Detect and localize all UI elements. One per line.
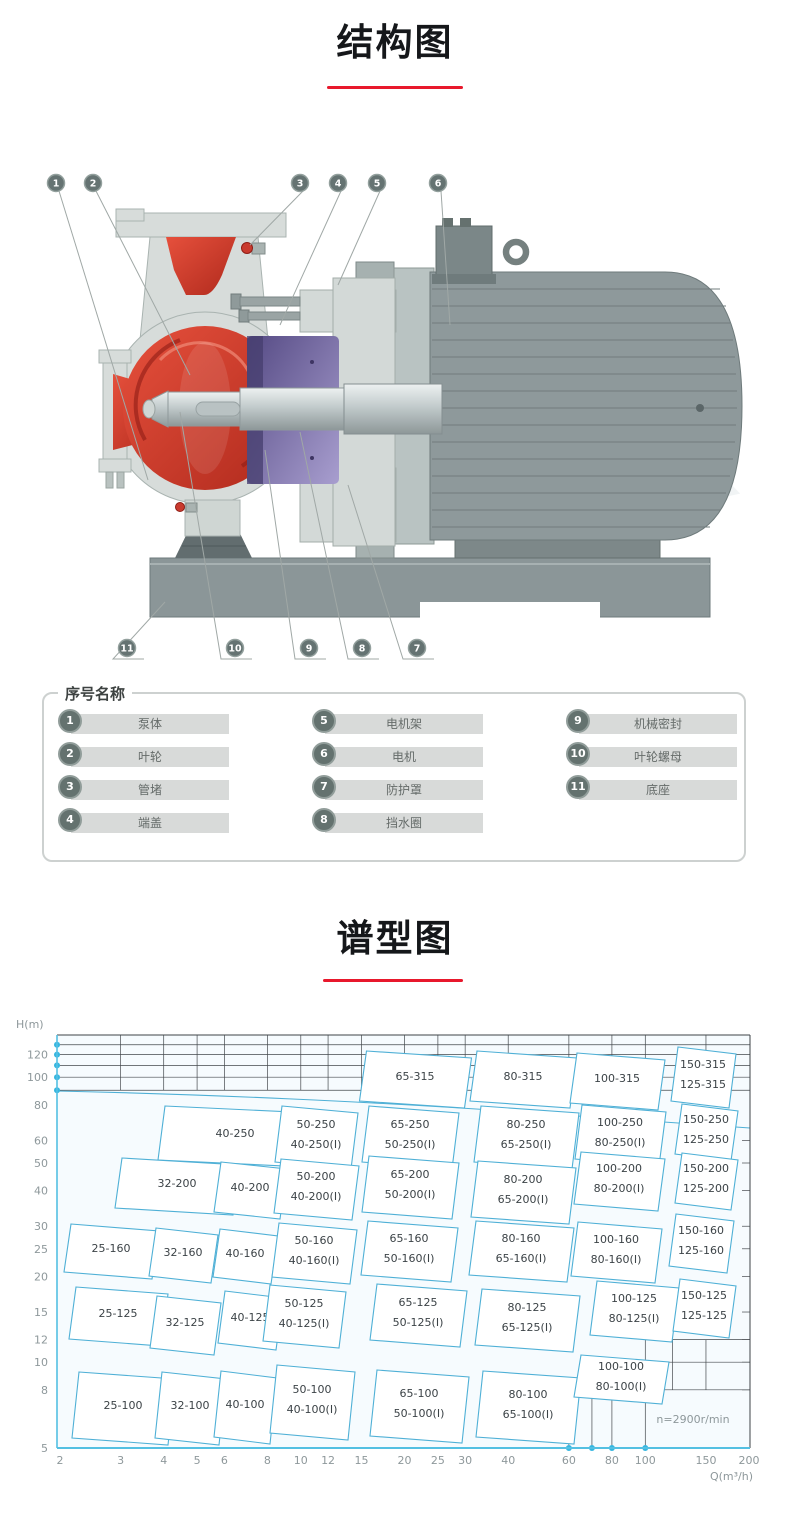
- cell-model-label: 100-200: [596, 1162, 642, 1175]
- cell-model-label: 65-200: [391, 1168, 430, 1181]
- cell-model-label: 125-125: [681, 1309, 727, 1322]
- part-list-item: 防护罩7: [312, 774, 548, 807]
- y-tick-label: 12: [34, 1334, 48, 1347]
- cell-model-label: 80-315: [504, 1070, 543, 1083]
- y-tick-label: 5: [41, 1442, 48, 1455]
- cell-model-label: 50-200: [297, 1170, 336, 1183]
- parts-column-2: 电机架5电机6防护罩7挡水圈8: [312, 708, 548, 840]
- cell-model-label: 25-160: [92, 1242, 131, 1255]
- part-label: 机械密封: [579, 714, 737, 734]
- x-tick-label: 3: [117, 1454, 124, 1467]
- cell-model-label: 125-315: [680, 1078, 726, 1091]
- cell-model-label: 25-125: [99, 1307, 138, 1320]
- cell-model-label: 125-200: [683, 1182, 729, 1195]
- part-label: 叶轮螺母: [579, 747, 737, 767]
- cell-model-label: 80-200: [504, 1173, 543, 1186]
- cell-model-label: 65-125: [399, 1296, 438, 1309]
- cell-model-label: 100-125: [611, 1292, 657, 1305]
- cell-model-label: 40-200: [231, 1181, 270, 1194]
- parts-column-3: 机械密封9叶轮螺母10底座11: [566, 708, 790, 807]
- cell-model-label: 50-125(I): [393, 1316, 444, 1329]
- callout-number: 7: [414, 644, 421, 655]
- part-number-badge: 6: [312, 742, 336, 766]
- cell-model-label: 50-100(I): [394, 1407, 445, 1420]
- cell-model-label: 125-160: [678, 1244, 724, 1257]
- x-tick-label: 80: [605, 1454, 619, 1467]
- part-list-item: 底座11: [566, 774, 790, 807]
- pump-shaft: [143, 384, 442, 434]
- x-tick-label: 2: [57, 1454, 64, 1467]
- part-label: 底座: [579, 780, 737, 800]
- cell-model-label: 80-250(I): [595, 1136, 646, 1149]
- cell-model-label: 150-200: [683, 1162, 729, 1175]
- cell-model-label: 40-160: [226, 1247, 265, 1260]
- part-list-item: 叶轮2: [58, 741, 294, 774]
- callout-number: 5: [374, 179, 381, 190]
- cell-model-label: 100-160: [593, 1233, 639, 1246]
- cell-model-label: 32-100: [171, 1399, 210, 1412]
- callout-number: 10: [228, 644, 242, 655]
- x-tick-label: 100: [635, 1454, 656, 1467]
- part-list-item: 端盖4: [58, 807, 294, 840]
- x-tick-label: 150: [695, 1454, 716, 1467]
- cell-model-label: 150-125: [681, 1289, 727, 1302]
- cell-model-label: 50-200(I): [385, 1188, 436, 1201]
- lifting-eye: [506, 242, 526, 262]
- cell-model-label: 50-125: [285, 1297, 324, 1310]
- cell-model-label: 100-100: [598, 1360, 644, 1373]
- callout-number: 9: [306, 644, 313, 655]
- cell-model-label: 40-100(I): [287, 1403, 338, 1416]
- cell-model-label: 80-160: [502, 1232, 541, 1245]
- part-number-badge: 5: [312, 709, 336, 733]
- part-label: 电机架: [325, 714, 483, 734]
- motor-body: [430, 272, 742, 540]
- cell-model-label: 40-250: [216, 1127, 255, 1140]
- x-tick-label: 25: [431, 1454, 445, 1467]
- part-list-item: 管堵3: [58, 774, 294, 807]
- part-label: 泵体: [71, 714, 229, 734]
- x-tick-label: 10: [294, 1454, 308, 1467]
- part-list-item: 电机架5: [312, 708, 548, 741]
- cell-model-label: 50-250(I): [385, 1138, 436, 1151]
- part-list-item: 机械密封9: [566, 708, 790, 741]
- part-label: 电机: [325, 747, 483, 767]
- x-tick-label: 40: [501, 1454, 515, 1467]
- cell-model-label: 80-100(I): [596, 1380, 647, 1393]
- cell-model-label: 65-200(I): [498, 1193, 549, 1206]
- cell-model-label: 25-100: [104, 1399, 143, 1412]
- cell-model-label: 40-250(I): [291, 1138, 342, 1151]
- cell-model-label: 50-160: [295, 1234, 334, 1247]
- part-label: 叶轮: [71, 747, 229, 767]
- x-tick-label: 12: [321, 1454, 335, 1467]
- callout-number: 2: [90, 179, 97, 190]
- x-tick-label: 6: [221, 1454, 228, 1467]
- part-label: 防护罩: [325, 780, 483, 800]
- cell-model-label: 150-315: [680, 1058, 726, 1071]
- cell-model-label: 65-125(I): [502, 1321, 553, 1334]
- x-tick-label: 5: [194, 1454, 201, 1467]
- x-tick-label: 8: [264, 1454, 271, 1467]
- cell-model-label: 65-250: [391, 1118, 430, 1131]
- cell-model-label: 150-160: [678, 1224, 724, 1237]
- y-tick-label: 80: [34, 1099, 48, 1112]
- cell-model-label: 65-160: [390, 1232, 429, 1245]
- cell-model-label: 100-315: [594, 1072, 640, 1085]
- part-number-badge: 4: [58, 808, 82, 832]
- parts-list-legend: 序号名称: [58, 683, 132, 704]
- parts-column-1: 泵体1叶轮2管堵3端盖4: [58, 708, 294, 840]
- terminal-box: [432, 218, 496, 284]
- callout-number: 3: [297, 179, 304, 190]
- y-tick-label: 15: [34, 1306, 48, 1319]
- part-list-item: 挡水圈8: [312, 807, 548, 840]
- part-number-badge: 7: [312, 775, 336, 799]
- part-list-item: 叶轮螺母10: [566, 741, 790, 774]
- structure-title-underline: [327, 86, 463, 89]
- chart-title-underline: [323, 979, 463, 982]
- page: 结构图: [0, 0, 790, 1520]
- part-number-badge: 11: [566, 775, 590, 799]
- cell-model-label: 40-125(I): [279, 1317, 330, 1330]
- part-number-badge: 9: [566, 709, 590, 733]
- y-tick-label: 50: [34, 1157, 48, 1170]
- cell-model-label: 40-200(I): [291, 1190, 342, 1203]
- part-number-badge: 1: [58, 709, 82, 733]
- parts-list-panel: 序号名称 泵体1叶轮2管堵3端盖4 电机架5电机6防护罩7挡水圈8 机械密封9叶…: [42, 692, 746, 862]
- chart-title: 谱型图: [0, 908, 790, 962]
- y-tick-label: 20: [34, 1270, 48, 1283]
- cell-model-label: 40-160(I): [289, 1254, 340, 1267]
- x-axis-title: Q(m³/h): [710, 1470, 753, 1483]
- y-tick-label: 100: [27, 1071, 48, 1084]
- y-axis-title: H(m): [16, 1018, 44, 1031]
- callout-number: 11: [120, 644, 133, 655]
- callout-number: 6: [435, 179, 442, 190]
- cell-model-label: 50-250: [297, 1118, 336, 1131]
- part-number-badge: 10: [566, 742, 590, 766]
- x-tick-label: 30: [458, 1454, 472, 1467]
- pump-structure-diagram: 1234561110987: [30, 150, 760, 670]
- cell-model-label: 65-160(I): [496, 1252, 547, 1265]
- part-label: 端盖: [71, 813, 229, 833]
- y-tick-label: 8: [41, 1384, 48, 1397]
- cell-model-label: 65-250(I): [501, 1138, 552, 1151]
- cell-model-label: 50-160(I): [384, 1252, 435, 1265]
- y-tick-label: 30: [34, 1220, 48, 1233]
- cell-model-label: 65-100: [400, 1387, 439, 1400]
- cell-model-label: 32-200: [158, 1177, 197, 1190]
- cell-model-label: 40-125: [231, 1311, 270, 1324]
- part-list-item: 电机6: [312, 741, 548, 774]
- x-tick-label: 15: [354, 1454, 368, 1467]
- cell-model-label: 50-100: [293, 1383, 332, 1396]
- callout-number: 4: [335, 179, 342, 190]
- part-list-item: 泵体1: [58, 708, 294, 741]
- cell-model-label: 65-100(I): [503, 1408, 554, 1421]
- y-tick-label: 25: [34, 1243, 48, 1256]
- cell-model-label: 80-250: [507, 1118, 546, 1131]
- part-label: 挡水圈: [325, 813, 483, 833]
- cell-model-label: 150-250: [683, 1113, 729, 1126]
- cell-model-label: 32-125: [166, 1316, 205, 1329]
- speed-note: n=2900r/min: [656, 1413, 729, 1426]
- y-tick-label: 120: [27, 1049, 48, 1062]
- cell-model-label: 80-125: [508, 1301, 547, 1314]
- cell-model-label: 125-250: [683, 1133, 729, 1146]
- y-tick-label: 10: [34, 1356, 48, 1369]
- cell-model-label: 80-125(I): [609, 1312, 660, 1325]
- x-tick-label: 200: [739, 1454, 760, 1467]
- y-tick-label: 60: [34, 1134, 48, 1147]
- callout-number: 8: [359, 644, 366, 655]
- y-tick-label: 40: [34, 1185, 48, 1198]
- x-tick-label: 60: [562, 1454, 576, 1467]
- cell-model-label: 65-315: [396, 1070, 435, 1083]
- callout-number: 1: [53, 179, 60, 190]
- x-tick-label: 20: [398, 1454, 412, 1467]
- x-tick-label: 4: [160, 1454, 167, 1467]
- structure-title: 结构图: [0, 12, 790, 66]
- part-number-badge: 2: [58, 742, 82, 766]
- part-number-badge: 8: [312, 808, 336, 832]
- cell-model-label: 80-100: [509, 1388, 548, 1401]
- part-label: 管堵: [71, 780, 229, 800]
- cell-model-label: 32-160: [164, 1246, 203, 1259]
- cell-model-label: 40-100: [226, 1398, 265, 1411]
- part-number-badge: 3: [58, 775, 82, 799]
- cell-model-label: 80-200(I): [594, 1182, 645, 1195]
- cell-model-label: 100-250: [597, 1116, 643, 1129]
- pump-selection-chart: 65-31580-315100-315150-315125-31540-2505…: [0, 1000, 790, 1520]
- cell-model-label: 80-160(I): [591, 1253, 642, 1266]
